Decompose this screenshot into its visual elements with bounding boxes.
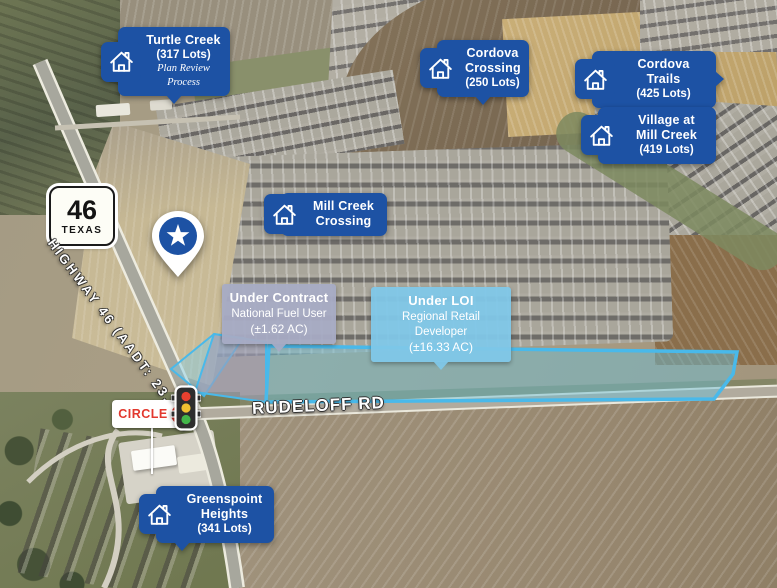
- under-contract-label: Under Contract National Fuel User (±1.62…: [222, 284, 336, 344]
- parcel-area: (±16.33 AC): [377, 340, 505, 356]
- pointer-down-icon: [271, 343, 287, 352]
- pointer-right-icon: [715, 71, 724, 87]
- community-name: Cordova Crossing: [465, 46, 520, 76]
- circle-k-wordmark: CIRCLE: [118, 407, 168, 421]
- pointer-down-icon: [174, 542, 190, 551]
- pointer-down-icon: [433, 361, 449, 370]
- highway-46-shield: 46 TEXAS: [49, 186, 115, 246]
- house-icon: [264, 194, 304, 234]
- community-name: Village at Mill Creek: [626, 113, 707, 143]
- community-label-cordova-trails: Cordova Trails (425 Lots): [592, 51, 716, 108]
- parcel-party: Regional Retail Developer: [377, 310, 505, 340]
- community-lots: (250 Lots): [465, 76, 520, 90]
- community-lots: (425 Lots): [620, 87, 707, 101]
- parcel-status: Under Contract: [228, 290, 330, 307]
- shield-number: 46: [67, 197, 97, 224]
- shield-state: TEXAS: [62, 225, 103, 236]
- house-icon: [101, 42, 141, 82]
- community-lots: (419 Lots): [626, 143, 707, 157]
- community-lots: (317 Lots): [146, 48, 221, 62]
- community-label-village-at-mill-creek: Village at Mill Creek (419 Lots): [598, 107, 716, 164]
- aerial-site-map: 46 TEXAS HIGHWAY 46 (AADT: 23,000) RUDEL…: [0, 0, 777, 588]
- under-loi-label: Under LOI Regional Retail Developer (±16…: [371, 287, 511, 362]
- community-name: Greenspoint Heights: [184, 492, 265, 522]
- community-label-greenspoint-heights: Greenspoint Heights (341 Lots): [156, 486, 274, 543]
- parcel-area: (±1.62 AC): [228, 322, 330, 338]
- circle-k-pointer-line: [151, 428, 153, 474]
- traffic-light-icon: [171, 385, 201, 433]
- community-label-turtle-creek: Turtle Creek (317 Lots) Plan Review Proc…: [118, 27, 230, 96]
- parcel-party: National Fuel User: [228, 307, 330, 322]
- house-icon: [575, 59, 615, 99]
- community-name: Mill Creek Crossing: [309, 199, 378, 229]
- community-note: Plan Review Process: [146, 62, 221, 89]
- house-icon: [139, 494, 179, 534]
- community-lots: (341 Lots): [184, 522, 265, 536]
- subject-site-star-pin: [150, 210, 206, 278]
- house-icon: [581, 115, 621, 155]
- community-label-mill-creek-crossing: Mill Creek Crossing: [281, 193, 387, 236]
- house-icon: [420, 48, 460, 88]
- pointer-down-icon: [475, 96, 491, 105]
- parcel-status: Under LOI: [377, 293, 505, 310]
- community-name: Cordova Trails: [620, 57, 707, 87]
- community-name: Turtle Creek: [146, 33, 221, 48]
- pointer-down-icon: [166, 95, 182, 104]
- community-label-cordova-crossing: Cordova Crossing (250 Lots): [437, 40, 529, 97]
